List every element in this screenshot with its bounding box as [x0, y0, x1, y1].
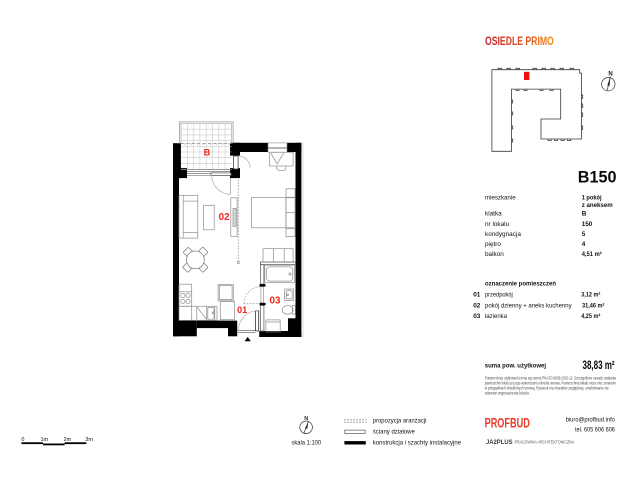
svg-text:stanowi wyposażenia lokalu.: stanowi wyposażenia lokalu. — [485, 391, 530, 396]
svg-text:PRACOWNIA ARCHITEKTONICZNA: PRACOWNIA ARCHITEKTONICZNA — [515, 440, 575, 445]
svg-text:B150: B150 — [578, 169, 617, 187]
svg-text:biuro@profbud.info: biuro@profbud.info — [566, 416, 615, 423]
svg-text:klatka: klatka — [485, 210, 502, 217]
svg-text:tel. 605 606 606: tel. 605 606 606 — [575, 426, 615, 433]
svg-text:150: 150 — [582, 221, 593, 228]
svg-text:ściany działowe: ściany działowe — [373, 430, 416, 436]
svg-text:B: B — [582, 210, 587, 217]
svg-text:0: 0 — [21, 437, 24, 443]
svg-text:01: 01 — [237, 305, 247, 315]
svg-text:03: 03 — [473, 313, 481, 320]
svg-text:z aneksem: z aneksem — [582, 202, 613, 209]
svg-text:5: 5 — [582, 231, 586, 238]
svg-text:propozycja aranżacji: propozycja aranżacji — [373, 419, 427, 425]
svg-text:4,25 m²: 4,25 m² — [581, 313, 600, 320]
svg-text:1m: 1m — [41, 437, 49, 443]
svg-text:konstrukcja i szachty instalac: konstrukcja i szachty instalacyjne — [373, 440, 462, 446]
svg-text:łazienka: łazienka — [485, 313, 507, 320]
svg-text:suma pow. użytkowej: suma pow. użytkowej — [485, 363, 546, 370]
svg-text:mieszkanie: mieszkanie — [485, 195, 516, 202]
svg-text:4: 4 — [582, 241, 586, 248]
svg-text:2m: 2m — [64, 437, 72, 443]
svg-text:skala 1:100: skala 1:100 — [291, 441, 321, 447]
svg-text:B: B — [204, 147, 211, 157]
svg-text:38,83 m²: 38,83 m² — [583, 358, 615, 372]
svg-text:PROFBUD: PROFBUD — [485, 415, 530, 431]
svg-text:piętro: piętro — [485, 241, 501, 248]
svg-text:OSIEDLE PRIMO: OSIEDLE PRIMO — [485, 34, 554, 48]
svg-text:przedpokój: przedpokój — [485, 292, 513, 299]
svg-text:3m: 3m — [85, 437, 93, 443]
svg-text:nr lokalu: nr lokalu — [485, 221, 510, 228]
svg-text:4,51 m²: 4,51 m² — [582, 251, 602, 258]
svg-text:pokój dzienny + aneks kuchenny: pokój dzienny + aneks kuchenny — [485, 303, 572, 310]
svg-text:kondygnacja: kondygnacja — [485, 231, 521, 238]
svg-text:02: 02 — [219, 212, 230, 223]
svg-text:3,12 m²: 3,12 m² — [581, 292, 600, 299]
svg-text:balkon: balkon — [485, 251, 504, 258]
svg-text:01: 01 — [473, 292, 481, 299]
svg-text:02: 02 — [473, 303, 481, 310]
svg-text:03: 03 — [270, 295, 281, 306]
svg-text:oznaczenie pomieszczeń: oznaczenie pomieszczeń — [485, 281, 556, 288]
svg-text:31,46 m²: 31,46 m² — [582, 303, 604, 310]
svg-text:1 pokój: 1 pokój — [582, 195, 602, 202]
svg-text:JA2PLUS: JA2PLUS — [486, 439, 513, 446]
